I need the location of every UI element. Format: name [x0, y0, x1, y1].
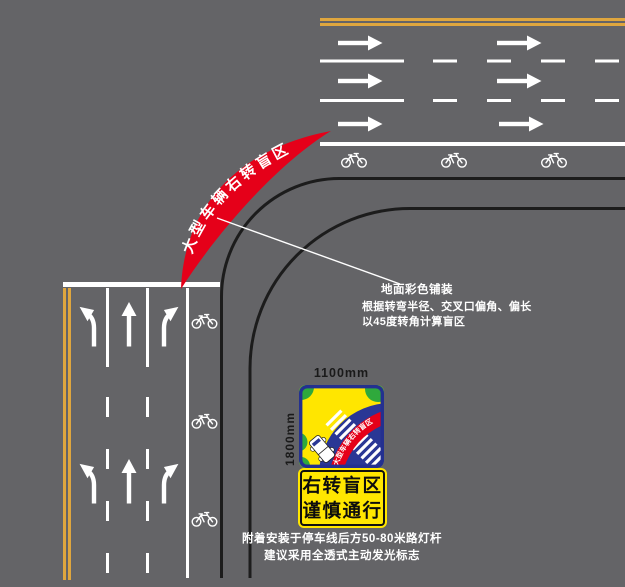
bicycle-icon: [442, 154, 467, 168]
blindzone-calc-annotation-line1: 根据转弯半径、交叉口偏角、偏长: [362, 300, 532, 315]
plaque-line-1: 右转盲区: [302, 473, 382, 498]
lane-divider-solid: [106, 288, 109, 367]
right-turn-arrow-icon: [164, 464, 179, 504]
installation-note-line1: 附着安装于停车线后方50-80米路灯杆: [192, 531, 492, 548]
left-turn-arrow-icon: [80, 464, 95, 504]
stop-line: [63, 282, 220, 287]
blindzone-calc-annotation-line2: 以45度转角计算盲区: [362, 315, 465, 330]
sign-height-dimension: 1800mm: [283, 409, 297, 469]
sign-text-plaque-border: 右转盲区 谨慎通行: [300, 470, 385, 526]
double-yellow-line-left-2: [68, 288, 71, 580]
bicycle-icon: [192, 415, 217, 429]
right-turn-arrow-icon: [164, 307, 179, 347]
straight-arrow-icon: [338, 74, 383, 89]
straight-arrow-icon: [497, 36, 542, 51]
intersection-diagram: 大型车辆右转盲区 地面彩色铺装 根据转弯半径、交叉口偏角、偏长 以45度转角计算…: [0, 0, 625, 587]
pavement-annotation: 地面彩色铺装: [381, 281, 453, 297]
straight-arrow-icon: [499, 117, 544, 132]
lane-divider-solid: [146, 288, 149, 367]
straight-arrow-icon: [122, 302, 137, 347]
left-turn-arrow-icon: [80, 307, 95, 347]
bicycle-icon: [192, 315, 217, 329]
bicycle-icon: [542, 154, 567, 168]
sign-text-plaque: 右转盲区 谨慎通行: [298, 468, 387, 528]
installation-notes: 附着安装于停车线后方50-80米路灯杆 建议采用全透式主动发光标志: [192, 531, 492, 565]
sign-pictogram: 大型车辆右转盲区: [299, 385, 384, 468]
top-road: [320, 18, 625, 167]
bike-lane-divider-top: [320, 142, 625, 146]
double-yellow-line-top-1: [320, 18, 625, 21]
plaque-line-2: 谨慎通行: [302, 498, 382, 523]
lane-divider-solid: [320, 60, 404, 63]
straight-arrow-icon: [497, 74, 542, 89]
annotation-leader-line: [217, 218, 400, 284]
bicycle-icon: [192, 513, 217, 527]
straight-arrow-icon: [338, 36, 383, 51]
sign-width-dimension: 1100mm: [299, 366, 384, 380]
bicycle-icon: [342, 154, 367, 168]
bike-lane-divider-left: [186, 288, 189, 578]
straight-arrow-icon: [338, 117, 383, 132]
straight-arrow-icon: [122, 459, 137, 504]
double-yellow-line-left-1: [63, 288, 66, 580]
curb-line-inner: [222, 179, 625, 579]
blind-zone-crescent: 大型车辆右转盲区: [179, 131, 331, 289]
lane-divider-solid: [320, 99, 404, 102]
double-yellow-line-top-2: [320, 23, 625, 26]
installation-note-line2: 建议采用全透式主动发光标志: [192, 548, 492, 565]
